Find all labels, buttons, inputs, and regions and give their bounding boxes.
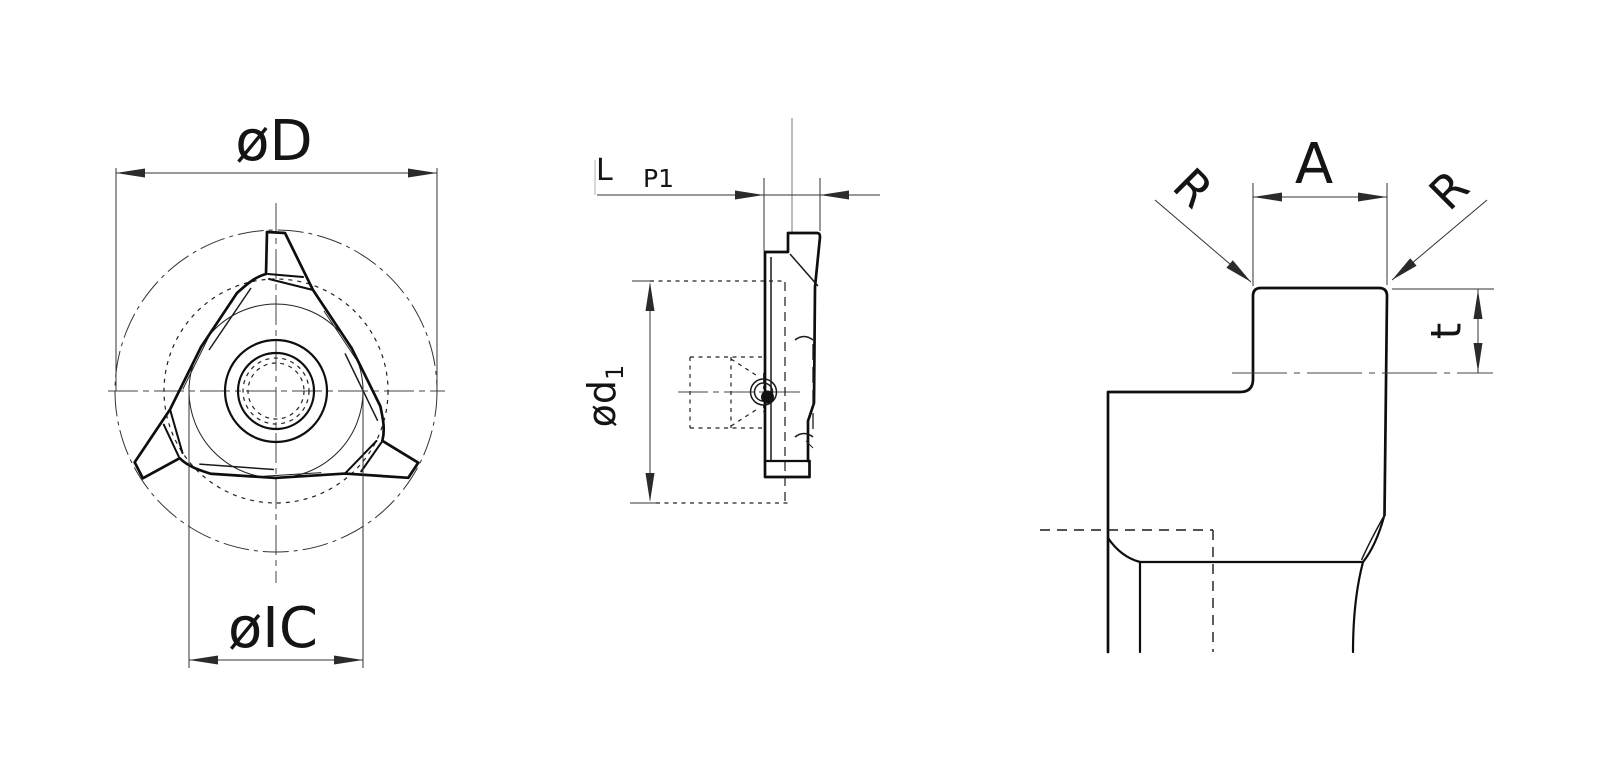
dim-a-arrow-right — [1358, 193, 1387, 202]
dim-t-label: t — [1422, 323, 1471, 339]
dim-od-label: øD — [235, 109, 312, 174]
dim-d1-label-prefix: ød — [580, 380, 624, 427]
dim-d1-label-subscript: 1 — [601, 365, 629, 380]
dim-p1-arrow-left — [735, 191, 764, 200]
dim-r-left-label: R — [1163, 158, 1224, 219]
side-notch-chamfer-line — [790, 254, 818, 286]
profile-view: A R R t — [1040, 132, 1494, 652]
profile-right-flank-curve — [1353, 562, 1363, 652]
profile-tooth-outline — [1108, 288, 1387, 652]
dim-d1-arrow-bottom — [646, 473, 655, 502]
dim-d1-label: ød1 — [580, 365, 629, 428]
dim-depth: t — [1232, 289, 1494, 373]
side-body-outline — [765, 233, 820, 477]
dim-r-left-arrow — [1226, 260, 1251, 282]
dim-p1-label: P1 — [643, 164, 674, 193]
profile-chamfer-inner-arc — [1362, 515, 1385, 560]
dim-length-pitch: L P1 — [595, 153, 880, 251]
dim-d1-arrow-top — [646, 282, 655, 311]
side-view: L P1 ød1 — [580, 118, 880, 503]
dim-od-arrow-left — [116, 169, 145, 178]
dim-l-label: L — [596, 153, 613, 188]
dim-ic-arrow-left — [189, 656, 218, 665]
dim-a-label: A — [1295, 132, 1333, 197]
dim-ic-arrow-right — [334, 656, 363, 665]
side-flank-curve-lower — [795, 434, 813, 438]
dim-a-arrow-left — [1253, 193, 1282, 202]
dim-radius-left: R — [1155, 158, 1251, 282]
dim-t-arrow-top — [1474, 290, 1483, 319]
technical-drawing-canvas: øD øIC — [0, 0, 1600, 770]
dim-ic-label: øIC — [228, 596, 318, 661]
dim-r-right-arrow — [1392, 258, 1417, 280]
dim-t-arrow-bottom — [1474, 343, 1483, 372]
insert-tooth-bottom-right — [264, 342, 451, 540]
dim-r-right-label: R — [1419, 160, 1480, 221]
dim-width: A — [1253, 132, 1387, 286]
profile-pocket-fillet — [1108, 538, 1140, 562]
dim-od-arrow-right — [408, 169, 437, 178]
drawing-sheet: øD øIC — [0, 0, 1600, 770]
insert-tooth-bottom-left — [98, 338, 285, 536]
dim-radius-right: R — [1392, 160, 1487, 280]
dim-p1-arrow-right — [820, 191, 849, 200]
front-view: øD øIC — [98, 109, 451, 668]
side-hole-section-fill — [761, 391, 774, 404]
side-flank-curve-upper — [795, 337, 813, 341]
